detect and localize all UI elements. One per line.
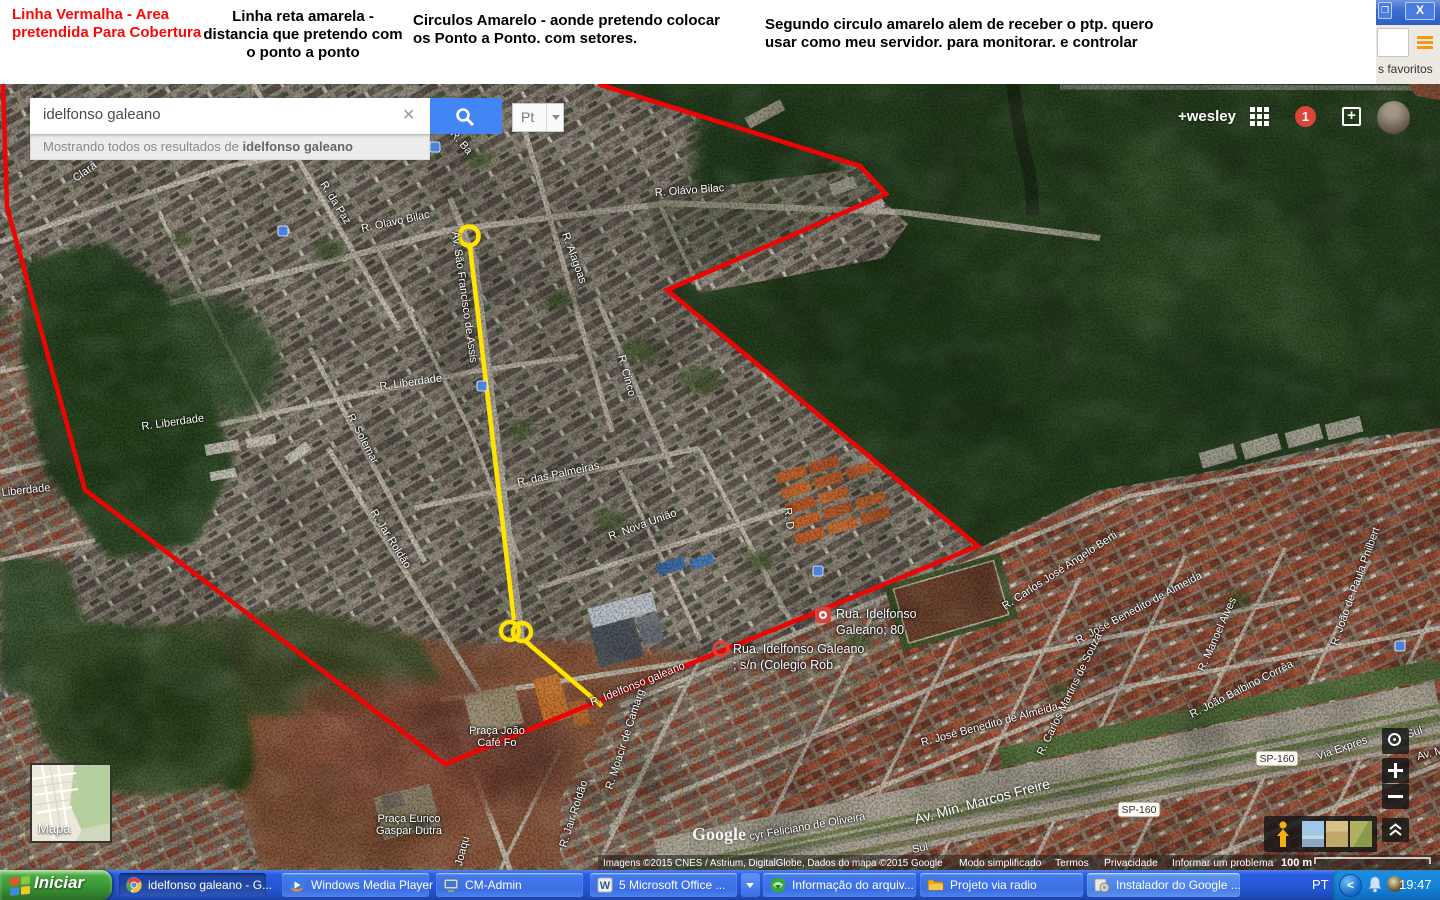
svg-text:; s/n (Colegio Rob: ; s/n (Colegio Rob	[733, 658, 833, 672]
svg-text:Privacidade: Privacidade	[1104, 858, 1158, 869]
svg-text:Gaspar Dutra: Gaspar Dutra	[376, 825, 443, 837]
svg-text:SP-160: SP-160	[1121, 804, 1156, 816]
svg-text:W: W	[600, 880, 611, 892]
svg-text:Termos: Termos	[1055, 858, 1089, 869]
svg-text:Imagens ©2015 CNES / Astrium,: Imagens ©2015 CNES / Astrium, DigitalGlo…	[603, 858, 943, 869]
svg-text:Informar um problema: Informar um problema	[1172, 858, 1274, 869]
svg-text:SP-160: SP-160	[1259, 753, 1294, 765]
svg-text:Café Fo: Café Fo	[477, 737, 516, 749]
svg-text:Galeano; 80: Galeano; 80	[836, 623, 904, 637]
svg-text:Praça João: Praça João	[469, 725, 525, 737]
svg-text:Rua. Idelfonso Galeano: Rua. Idelfonso Galeano	[733, 642, 864, 656]
svg-text:Google: Google	[692, 824, 746, 844]
svg-text:100 m: 100 m	[1281, 857, 1312, 869]
svg-text:Rua. Idelfonso: Rua. Idelfonso	[836, 607, 917, 621]
svg-text:Praça Eurico: Praça Eurico	[378, 813, 441, 825]
svg-text:Modo simplificado: Modo simplificado	[959, 858, 1042, 869]
